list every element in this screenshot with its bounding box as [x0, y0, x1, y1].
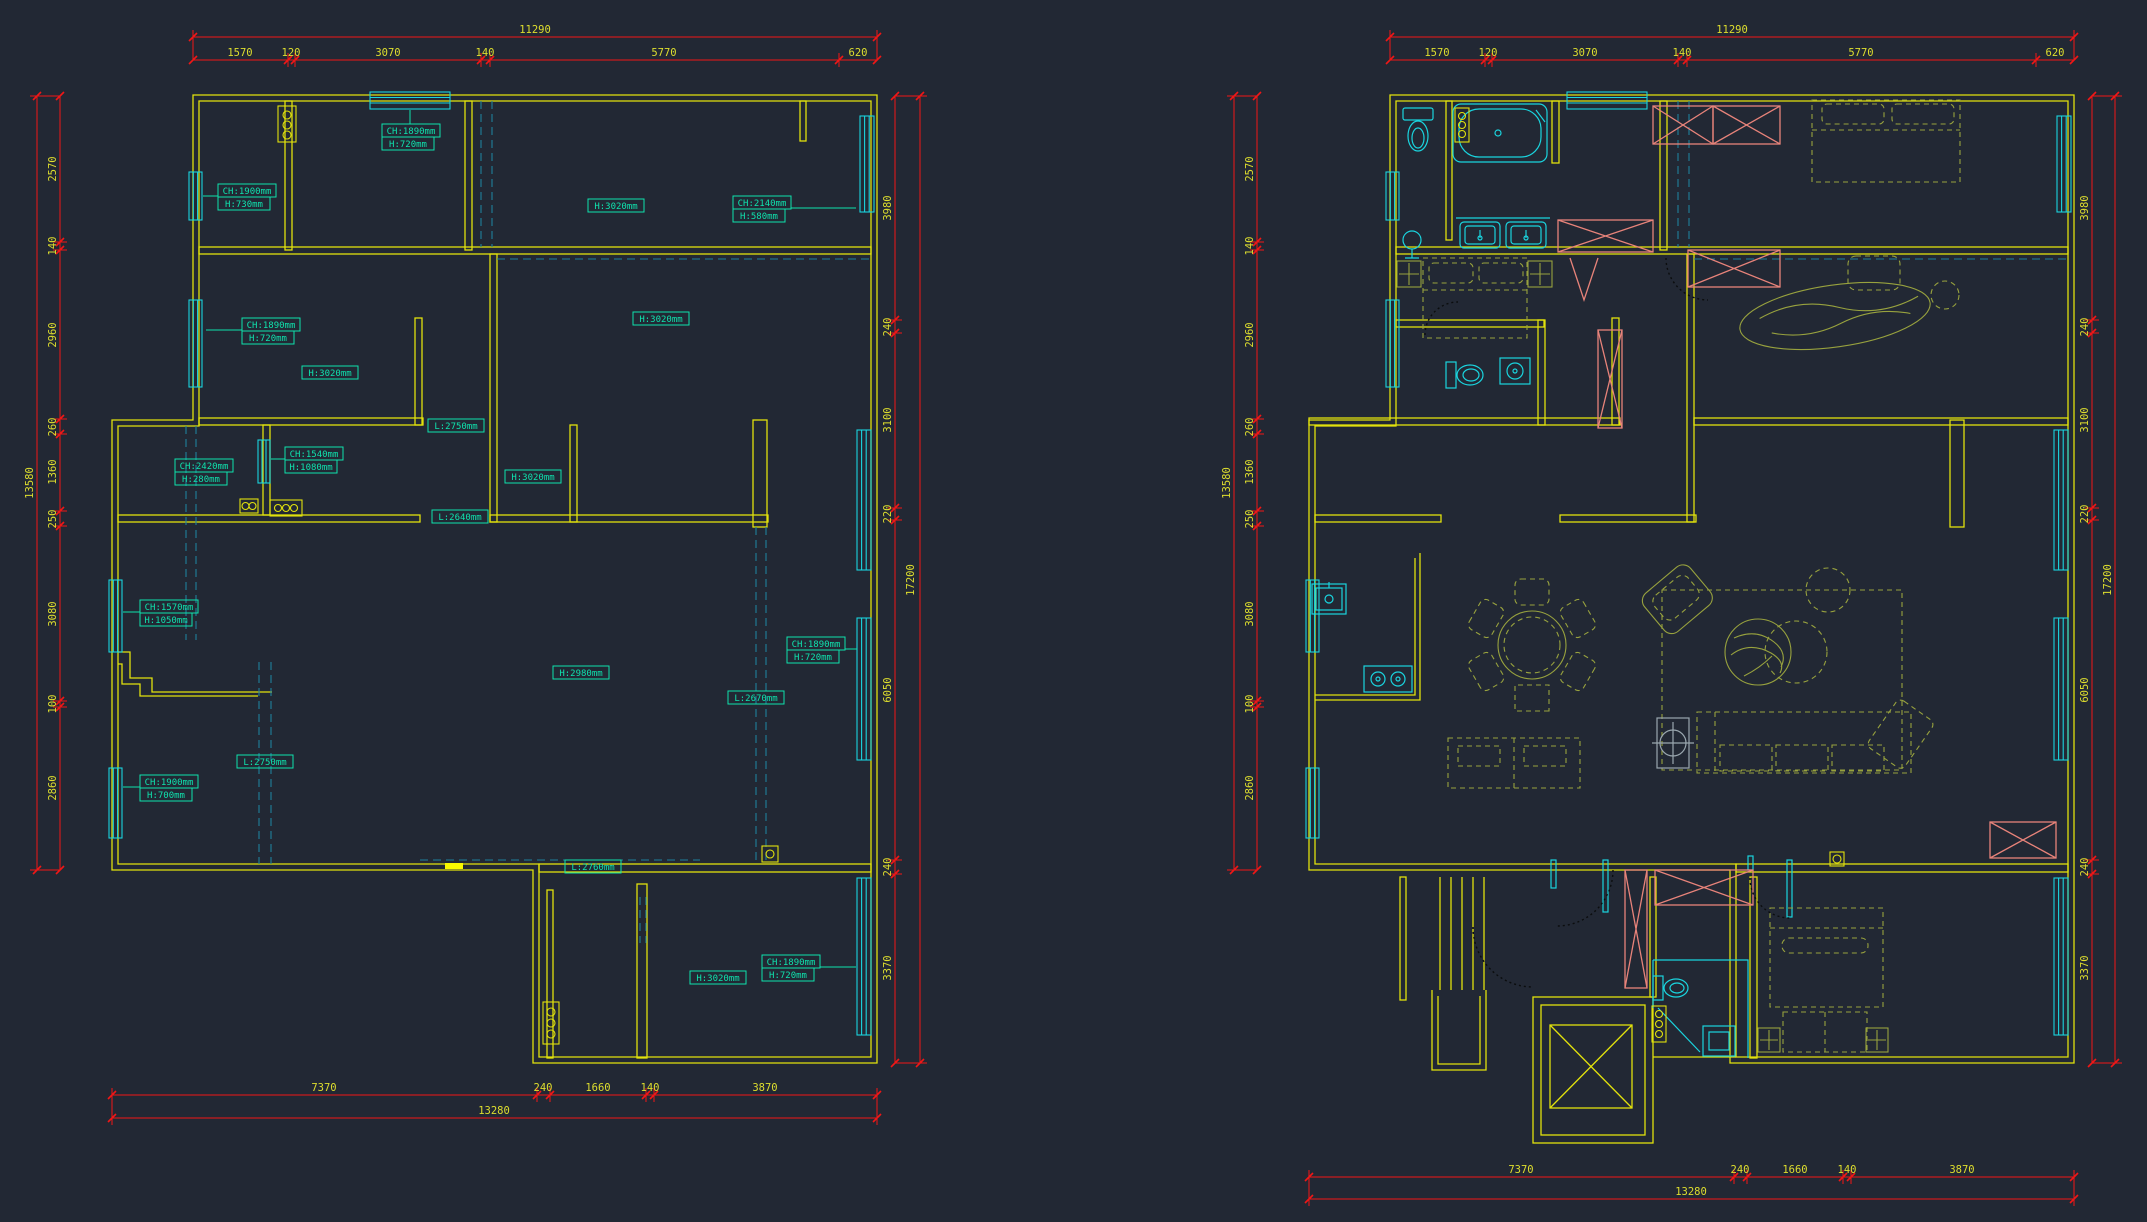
coffee-table: [1725, 619, 1827, 685]
height-label: CH:1890mmH:720mm: [382, 124, 440, 150]
dim-text: 620: [2046, 47, 2065, 59]
right-plan-furniture: [1397, 100, 1960, 1052]
svg-text:H:3020mm: H:3020mm: [594, 202, 637, 212]
dim-text: 140: [1673, 47, 1692, 59]
height-label: CH:1890mmH:720mm: [242, 318, 300, 344]
right-plan-wardrobes: [1558, 106, 2056, 988]
bed-top-right: [1812, 100, 1960, 182]
dim-text: 5770: [651, 47, 676, 59]
dim-text: 120: [282, 47, 301, 59]
svg-text:H:720mm: H:720mm: [769, 971, 807, 981]
svg-text:H:3020mm: H:3020mm: [696, 974, 739, 984]
dim-text: 3100: [882, 407, 894, 432]
dim-text: 240: [1731, 1164, 1750, 1176]
height-label: CH:1900mmH:700mm: [140, 775, 198, 801]
desk-chair: [1848, 256, 1900, 290]
dim-text: 2960: [47, 322, 59, 347]
kitchen-sink: [1312, 582, 1346, 614]
svg-text:CH:1890mm: CH:1890mm: [247, 321, 296, 331]
svg-text:H:3020mm: H:3020mm: [511, 473, 554, 483]
svg-text:H:720mm: H:720mm: [794, 653, 832, 663]
svg-text:L:2640mm: L:2640mm: [438, 513, 481, 523]
dim-text: 3070: [1572, 47, 1597, 59]
dim-text: 250: [1244, 510, 1256, 529]
left-plan-dim-left: 2570 140 2960 260 1360 250 3080 100 2860…: [24, 92, 67, 874]
svg-text:H:280mm: H:280mm: [182, 475, 220, 485]
sink-middle-bath: [1500, 358, 1530, 384]
dim-text: 7370: [1508, 1164, 1533, 1176]
dim-text: 2570: [47, 156, 59, 181]
height-label: CH:1890mmH:720mm: [787, 637, 845, 663]
svg-text:L:2750mm: L:2750mm: [243, 758, 286, 768]
dim-text-total: 13580: [24, 467, 36, 499]
dim-text-total: 17200: [905, 564, 917, 596]
dim-text: 260: [47, 418, 59, 437]
lower-bathroom: [1653, 960, 1748, 1058]
height-label: CH:1900mmH:730mm: [218, 184, 276, 210]
svg-text:H:3020mm: H:3020mm: [308, 369, 351, 379]
svg-text:CH:1570mm: CH:1570mm: [145, 603, 194, 613]
left-plan-walls: [112, 95, 877, 1063]
dim-text: 3370: [882, 955, 894, 980]
svg-text:CH:2420mm: CH:2420mm: [180, 462, 229, 472]
right-plan-dashed-lines: [1678, 101, 2068, 259]
svg-text:H:1080mm: H:1080mm: [289, 463, 332, 473]
dim-text: 3980: [882, 195, 894, 220]
svg-text:L:2670mm: L:2670mm: [734, 694, 777, 704]
left-plan: CH:1890mmH:720mm CH:1900mmH:730mm H:3020…: [24, 24, 927, 1125]
dim-text: 1360: [1244, 459, 1256, 484]
dim-text: 2860: [1244, 775, 1256, 800]
dining-table: [1466, 579, 1597, 711]
column-grid-marker: [1652, 718, 1694, 768]
svg-text:H:720mm: H:720mm: [249, 334, 287, 344]
svg-text:H:580mm: H:580mm: [740, 212, 778, 222]
height-label: H:3020mm: [302, 366, 358, 379]
dim-text-total: 13280: [478, 1105, 510, 1117]
svg-text:CH:1890mm: CH:1890mm: [792, 640, 841, 650]
right-plan-dim-left: 2570 140 2960 260 1360 250 3080 100 2860…: [1221, 92, 1264, 874]
length-label: L:2670mm: [728, 691, 784, 704]
toilet-middle-bath: [1446, 362, 1483, 388]
height-label: H:3020mm: [690, 971, 746, 984]
dim-text-total: 13580: [1221, 467, 1233, 499]
svg-text:CH:2140mm: CH:2140mm: [738, 199, 787, 209]
wall-highlight: [445, 863, 463, 869]
dim-text: 260: [1244, 418, 1256, 437]
dim-text: 240: [882, 858, 894, 877]
dim-text: 1570: [1424, 47, 1449, 59]
dim-text: 3080: [47, 601, 59, 626]
svg-text:H:1050mm: H:1050mm: [144, 616, 187, 626]
dim-text: 3870: [752, 1082, 777, 1094]
dim-text: 140: [1244, 237, 1256, 256]
cad-canvas: CH:1890mmH:720mm CH:1900mmH:730mm H:3020…: [0, 0, 2147, 1222]
dim-text: 1570: [227, 47, 252, 59]
right-plan-dim-top: 1570 120 3070 140 5770 620 11290: [1386, 24, 2078, 67]
left-plan-dim-top: 1570 120 3070 140 5770 620 11290: [189, 24, 881, 67]
length-label: L:2750mm: [428, 419, 484, 432]
cooktop: [1364, 666, 1412, 692]
dim-text: 240: [534, 1082, 553, 1094]
height-label: CH:1540mmH:1080mm: [285, 447, 343, 473]
svg-text:CH:1540mm: CH:1540mm: [290, 450, 339, 460]
right-plan-walls: [1309, 95, 2074, 1143]
svg-text:H:700mm: H:700mm: [147, 791, 185, 801]
chaise-lounge: [1736, 272, 1935, 360]
dim-text: 3070: [375, 47, 400, 59]
right-plan-dim-bottom: 7370 240 1660 140 3870 13280: [1305, 1164, 2078, 1206]
dim-text: 620: [849, 47, 868, 59]
dim-text: 250: [47, 510, 59, 529]
bathtub: [1453, 104, 1547, 162]
svg-text:H:720mm: H:720mm: [389, 140, 427, 150]
dim-text: 140: [641, 1082, 660, 1094]
door-frames: [1551, 856, 1792, 917]
length-label: L:2760mm: [565, 860, 621, 873]
dim-text: 7370: [311, 1082, 336, 1094]
svg-text:L:2750mm: L:2750mm: [434, 422, 477, 432]
svg-text:L:2760mm: L:2760mm: [571, 863, 614, 873]
dim-text: 1660: [585, 1082, 610, 1094]
dim-text: 3100: [2079, 407, 2091, 432]
height-label: H:2980mm: [553, 666, 609, 679]
dim-text-total: 13280: [1675, 1186, 1707, 1198]
dim-text: 220: [882, 505, 894, 524]
height-label: H:3020mm: [505, 470, 561, 483]
height-label: CH:1890mmH:720mm: [762, 955, 820, 981]
kitchen-island: [1448, 738, 1580, 788]
svg-text:CH:1890mm: CH:1890mm: [387, 127, 436, 137]
dim-text: 140: [1838, 1164, 1857, 1176]
dim-text: 2860: [47, 775, 59, 800]
height-label: CH:1570mmH:1050mm: [140, 600, 198, 626]
dim-text: 120: [1479, 47, 1498, 59]
armchair: [1638, 561, 1716, 638]
svg-text:H:2980mm: H:2980mm: [559, 669, 602, 679]
bed-top-left: [1397, 258, 1552, 338]
left-plan-dim-right: 3980 240 3100 220 6050 240 3370 17200: [882, 92, 927, 1067]
dim-text: 3870: [1949, 1164, 1974, 1176]
height-label: H:3020mm: [588, 199, 644, 212]
dim-text: 240: [2079, 858, 2091, 877]
left-plan-labels: CH:1890mmH:720mm CH:1900mmH:730mm H:3020…: [123, 110, 857, 984]
svg-text:H:3020mm: H:3020mm: [639, 315, 682, 325]
sofa: [1697, 698, 1935, 773]
dim-text: 240: [2079, 318, 2091, 337]
dim-text: 1660: [1782, 1164, 1807, 1176]
toilet-master-bath: [1403, 108, 1433, 151]
dim-text: 140: [47, 237, 59, 256]
dim-text: 5770: [1848, 47, 1873, 59]
right-plan-dim-right: 3980 240 3100 220 6050 240 3370 17200: [2079, 92, 2122, 1067]
kettle: [1931, 281, 1959, 309]
dim-text-total: 11290: [1716, 24, 1748, 36]
dim-text: 3980: [2079, 195, 2091, 220]
length-label: L:2640mm: [432, 510, 488, 523]
left-plan-dim-bottom: 7370 240 1660 140 3870 13280: [108, 1082, 881, 1125]
dim-text: 2960: [1244, 322, 1256, 347]
dim-text: 100: [47, 695, 59, 714]
height-label: H:3020mm: [633, 312, 689, 325]
dim-text-total: 11290: [519, 24, 551, 36]
dim-text: 3370: [2079, 955, 2091, 980]
svg-text:CH:1900mm: CH:1900mm: [223, 187, 272, 197]
dim-text: 6050: [882, 677, 894, 702]
length-label: L:2750mm: [237, 755, 293, 768]
height-label: CH:2420mmH:280mm: [175, 459, 233, 485]
dim-text: 240: [882, 318, 894, 337]
dim-text: 6050: [2079, 677, 2091, 702]
dim-text: 2570: [1244, 156, 1256, 181]
dim-text-total: 17200: [2102, 564, 2114, 596]
rug: [1662, 590, 1902, 770]
height-label: CH:2140mmH:580mm: [733, 196, 791, 222]
floor-plan-drawing: CH:1890mmH:720mm CH:1900mmH:730mm H:3020…: [0, 0, 2147, 1222]
dim-text: 1360: [47, 459, 59, 484]
dim-text: 3080: [1244, 601, 1256, 626]
dim-text: 100: [1244, 695, 1256, 714]
bed-bottom: [1758, 908, 1888, 1052]
right-plan: 1570 120 3070 140 5770 620 11290 2570 14…: [1221, 24, 2122, 1206]
double-vanity: [1456, 218, 1550, 248]
svg-text:CH:1900mm: CH:1900mm: [145, 778, 194, 788]
dim-text: 220: [2079, 505, 2091, 524]
dim-text: 140: [476, 47, 495, 59]
svg-text:H:730mm: H:730mm: [225, 200, 263, 210]
svg-text:CH:1890mm: CH:1890mm: [767, 958, 816, 968]
